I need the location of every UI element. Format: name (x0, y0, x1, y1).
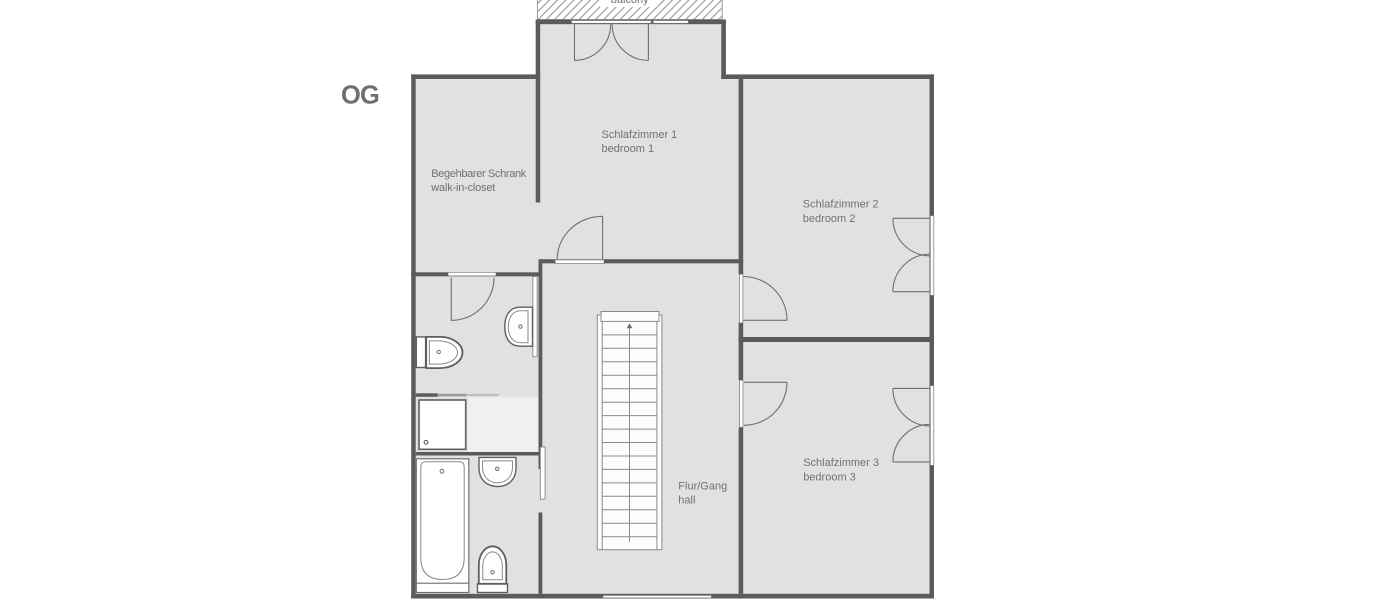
svg-text:hall: hall (678, 495, 695, 507)
svg-text:bedroom 2: bedroom 2 (803, 213, 856, 225)
svg-text:bedroom 3: bedroom 3 (803, 472, 856, 484)
svg-text:Begehbarer Schrank: Begehbarer Schrank (431, 168, 526, 180)
svg-text:walk-in-closet: walk-in-closet (430, 182, 495, 194)
svg-text:Flur/Gang: Flur/Gang (678, 480, 727, 492)
svg-text:Schlafzimmer 2: Schlafzimmer 2 (803, 199, 879, 211)
svg-text:balcony: balcony (611, 0, 649, 6)
svg-text:Schlafzimmer 1: Schlafzimmer 1 (602, 129, 678, 141)
svg-text:OG: OG (341, 82, 379, 110)
svg-text:Schlafzimmer 3: Schlafzimmer 3 (803, 457, 879, 469)
svg-text:bedroom 1: bedroom 1 (602, 143, 655, 155)
